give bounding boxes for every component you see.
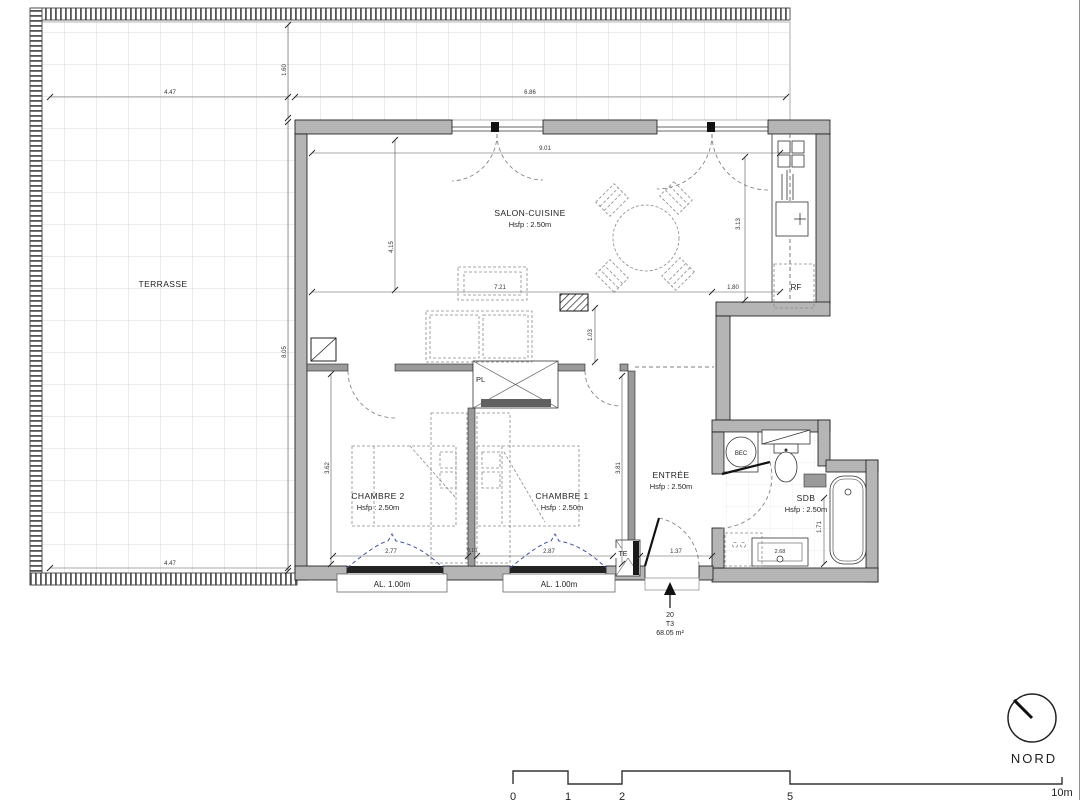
- duct-shaft: [560, 294, 588, 311]
- bedroom-furniture: [352, 413, 579, 563]
- terrace: [30, 8, 790, 585]
- salon-height-label: Hsfp : 2.50m: [509, 220, 552, 229]
- sdb-height-label: Hsfp : 2.50m: [785, 505, 828, 514]
- closet-pl: [473, 361, 558, 408]
- kitchen-counter: [772, 134, 814, 308]
- dim-fridge-w: 1.80: [727, 285, 739, 291]
- cooktop-burner: [792, 141, 804, 153]
- dim-salon-w: 9.01: [539, 146, 551, 152]
- column: [311, 338, 336, 361]
- vanity-drain: [777, 556, 783, 562]
- cooktop-burner: [792, 155, 804, 167]
- scale-0: 0: [510, 791, 516, 800]
- unit-area: 68.05 m²: [656, 630, 684, 637]
- sofa-seat: [483, 315, 528, 358]
- scale-2: 2: [619, 791, 625, 800]
- dim-chambre2-w: 2.77: [385, 549, 397, 555]
- terrace-railing-top: [32, 8, 790, 20]
- entry-fixtures: [614, 540, 699, 590]
- dining-chair: [660, 182, 693, 215]
- half-wall: [804, 474, 826, 487]
- dim-sdb-h: 1.71: [817, 521, 823, 533]
- al-left-label: AL. 1.00m: [374, 580, 411, 589]
- dim-salon-inner-w: 7.21: [494, 285, 506, 291]
- scale-bar-line: [513, 771, 1062, 784]
- bathtub-drain: [845, 489, 851, 495]
- dim-chambre1-w: 2.87: [543, 549, 555, 555]
- dim-wall-gap: 0.10: [467, 548, 477, 554]
- curtain-arc-right: [510, 534, 606, 568]
- chambre1-label: CHAMBRE 1: [535, 491, 588, 501]
- door-swing-chambre1: [585, 371, 620, 406]
- dining-chair: [662, 258, 695, 291]
- sdb-label: SDB: [797, 493, 816, 503]
- terrace-floor: [40, 22, 790, 575]
- door-swing-entrance: [659, 518, 699, 566]
- dim-facade-top: 6.86: [524, 90, 536, 96]
- cooktop-burner: [778, 155, 790, 167]
- dim-passage: 1.03: [588, 329, 594, 341]
- dim-terrace-bottom: 4.47: [164, 561, 176, 567]
- dining-chair: [596, 184, 629, 217]
- nord-label: NORD: [1011, 751, 1057, 766]
- door-swing-chambre2: [348, 371, 395, 418]
- sofa-seat: [430, 315, 479, 358]
- unit-number: 20: [666, 612, 674, 619]
- coffee-table-inner: [464, 272, 521, 295]
- pl-label: PL: [476, 375, 485, 384]
- al-right-label: AL. 1.00m: [541, 580, 578, 589]
- dim-chambre1-h: 3.81: [616, 462, 622, 474]
- salon-label: SALON-CUISINE: [494, 208, 565, 218]
- dining-chair: [596, 260, 629, 293]
- dining-table: [613, 205, 679, 271]
- vanity-dim-label: 2.68: [775, 549, 786, 555]
- unit-type: T3: [666, 621, 674, 628]
- terrasse-label: TERRASSE: [138, 279, 187, 289]
- chambre2-height-label: Hsfp : 2.50m: [357, 503, 400, 512]
- bec-label: BEC: [735, 451, 748, 457]
- chambre1-height-label: Hsfp : 2.50m: [541, 503, 584, 512]
- toilet-bowl: [775, 452, 797, 482]
- dim-salon-h: 4.15: [389, 241, 395, 253]
- cooktop-burner: [778, 141, 790, 153]
- door-leaf-entrance: [645, 518, 659, 566]
- dim-kitchen-h: 3.13: [736, 218, 742, 230]
- interior-doors: [348, 371, 772, 566]
- terrace-railing-left: [30, 8, 42, 585]
- scale-1: 1: [565, 791, 571, 800]
- dim-terrace-left: 8.05: [282, 346, 288, 358]
- dim-chambre2-h: 3.62: [325, 462, 331, 474]
- entree-label: ENTRÉE: [653, 470, 690, 480]
- chambre2-label: CHAMBRE 2: [351, 491, 404, 501]
- window-mullion: [707, 122, 715, 132]
- scale-bar: 0 1 2 5 10m: [510, 771, 1073, 800]
- window-mullion: [491, 122, 499, 132]
- floor-plan-canvas: TERRASSE SALON-CUISINE Hsfp : 2.50m CHAM…: [0, 0, 1082, 800]
- scale-10m: 10m: [1051, 787, 1072, 799]
- scale-5: 5: [787, 791, 793, 800]
- dim-terrace-top-h: 1.60: [282, 64, 288, 76]
- rf-label: RF: [791, 283, 802, 292]
- compass-needle-icon: [1014, 700, 1032, 718]
- floor-plan-page: TERRASSE SALON-CUISINE Hsfp : 2.50m CHAM…: [0, 0, 1082, 800]
- bed-chambre1: [477, 446, 579, 526]
- entree-height-label: Hsfp : 2.50m: [650, 482, 693, 491]
- te-label: TE: [619, 551, 628, 558]
- terrace-railing-bottom: [30, 573, 297, 585]
- dim-terrace-top: 4.47: [164, 90, 176, 96]
- north-compass: NORD: [1008, 694, 1057, 766]
- wardrobe: [431, 413, 467, 563]
- dim-entree-w: 1.37: [670, 549, 682, 555]
